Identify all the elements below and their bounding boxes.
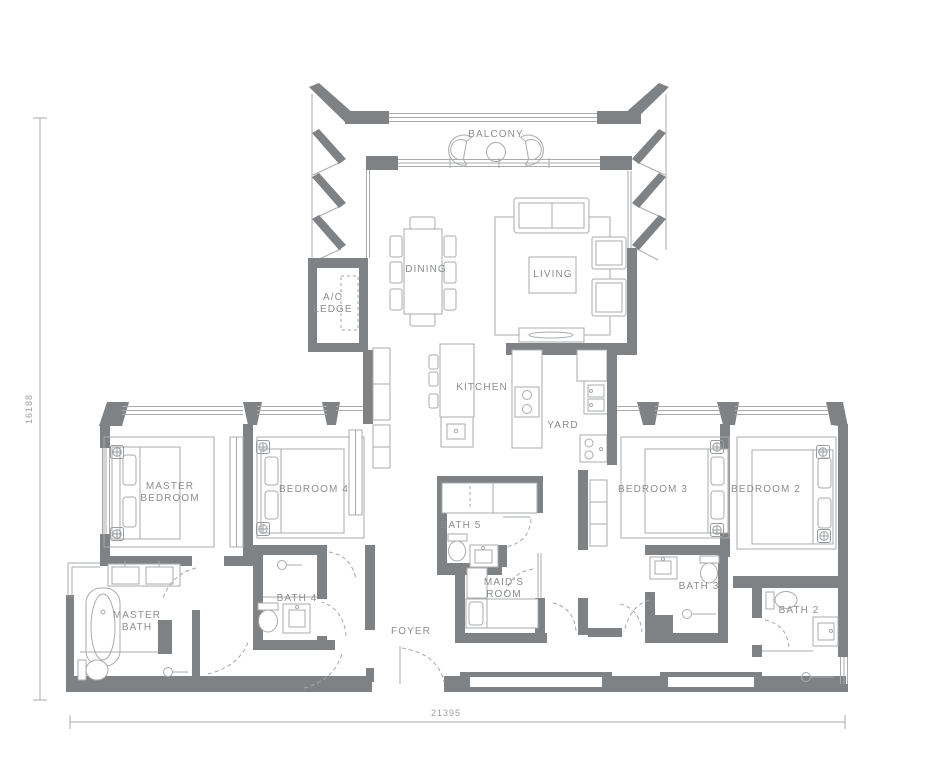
balcony-chair-icon bbox=[520, 133, 545, 166]
dimension-line-vertical: 16188 bbox=[24, 118, 47, 700]
dimension-label-height: 16188 bbox=[24, 394, 34, 424]
room-label-kitchen: KITCHEN bbox=[456, 382, 508, 393]
room-label-foyer: FOYER bbox=[391, 626, 431, 637]
room-label-bath5: BATH 5 bbox=[441, 520, 482, 531]
ac-unit-dashed-outline bbox=[341, 276, 358, 330]
room-label-bedroom2: BEDROOM 2 bbox=[731, 484, 801, 495]
room-label-dining: DINING bbox=[405, 264, 447, 275]
kitchen-cabinets-icon bbox=[373, 348, 390, 468]
room-label-bedroom3: BEDROOM 3 bbox=[618, 484, 688, 495]
room-label-bedroom4: BEDROOM 4 bbox=[279, 484, 349, 495]
dimension-line-horizontal: 21395 bbox=[70, 708, 845, 729]
room-label-ac-ledge-line1: A/C bbox=[323, 292, 343, 303]
room-label-master-bath-line2: BATH bbox=[122, 622, 152, 633]
cooktop-counter-icon bbox=[512, 350, 542, 448]
room-label-ac-ledge-line2: LEDGE bbox=[313, 304, 352, 315]
room-label-bath4: BATH 4 bbox=[277, 593, 318, 604]
room-label-master-bedroom-line1: MASTER bbox=[146, 481, 194, 492]
room-label-maids-room-line1: MAID'S bbox=[484, 577, 524, 588]
balcony-table-icon bbox=[487, 143, 506, 162]
master-bedroom-bed-icon bbox=[104, 437, 243, 547]
room-label-master-bath-line1: MASTER bbox=[113, 610, 161, 621]
room-label-yard: YARD bbox=[547, 420, 578, 431]
floor-plan-drawing: 16188 21395 bbox=[0, 0, 926, 768]
room-label-master-bedroom-line2: BEDROOM bbox=[140, 493, 199, 504]
room-label-maids-room-line2: ROOM bbox=[486, 589, 522, 600]
dimension-label-width: 21395 bbox=[431, 708, 461, 718]
floor-plan-page: 16188 21395 bbox=[0, 0, 926, 768]
room-label-living: LIVING bbox=[533, 269, 572, 280]
room-label-bath3: BATH 3 bbox=[679, 581, 720, 592]
room-label-bath2: BATH 2 bbox=[779, 605, 820, 616]
room-label-balcony: BALCONY bbox=[468, 129, 524, 140]
kitchen-island-icon bbox=[429, 344, 474, 447]
